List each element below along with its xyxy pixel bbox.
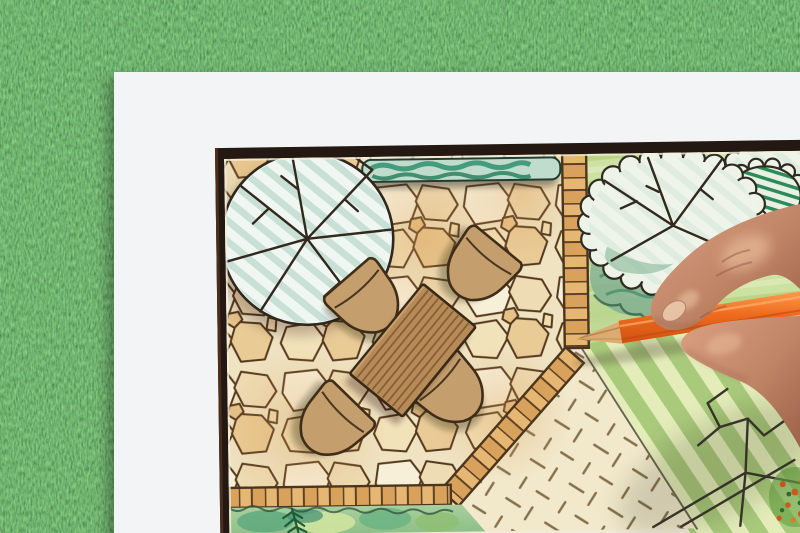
- hedge: [359, 157, 560, 189]
- photo-scene: [0, 0, 800, 533]
- scene-canvas: [0, 0, 800, 533]
